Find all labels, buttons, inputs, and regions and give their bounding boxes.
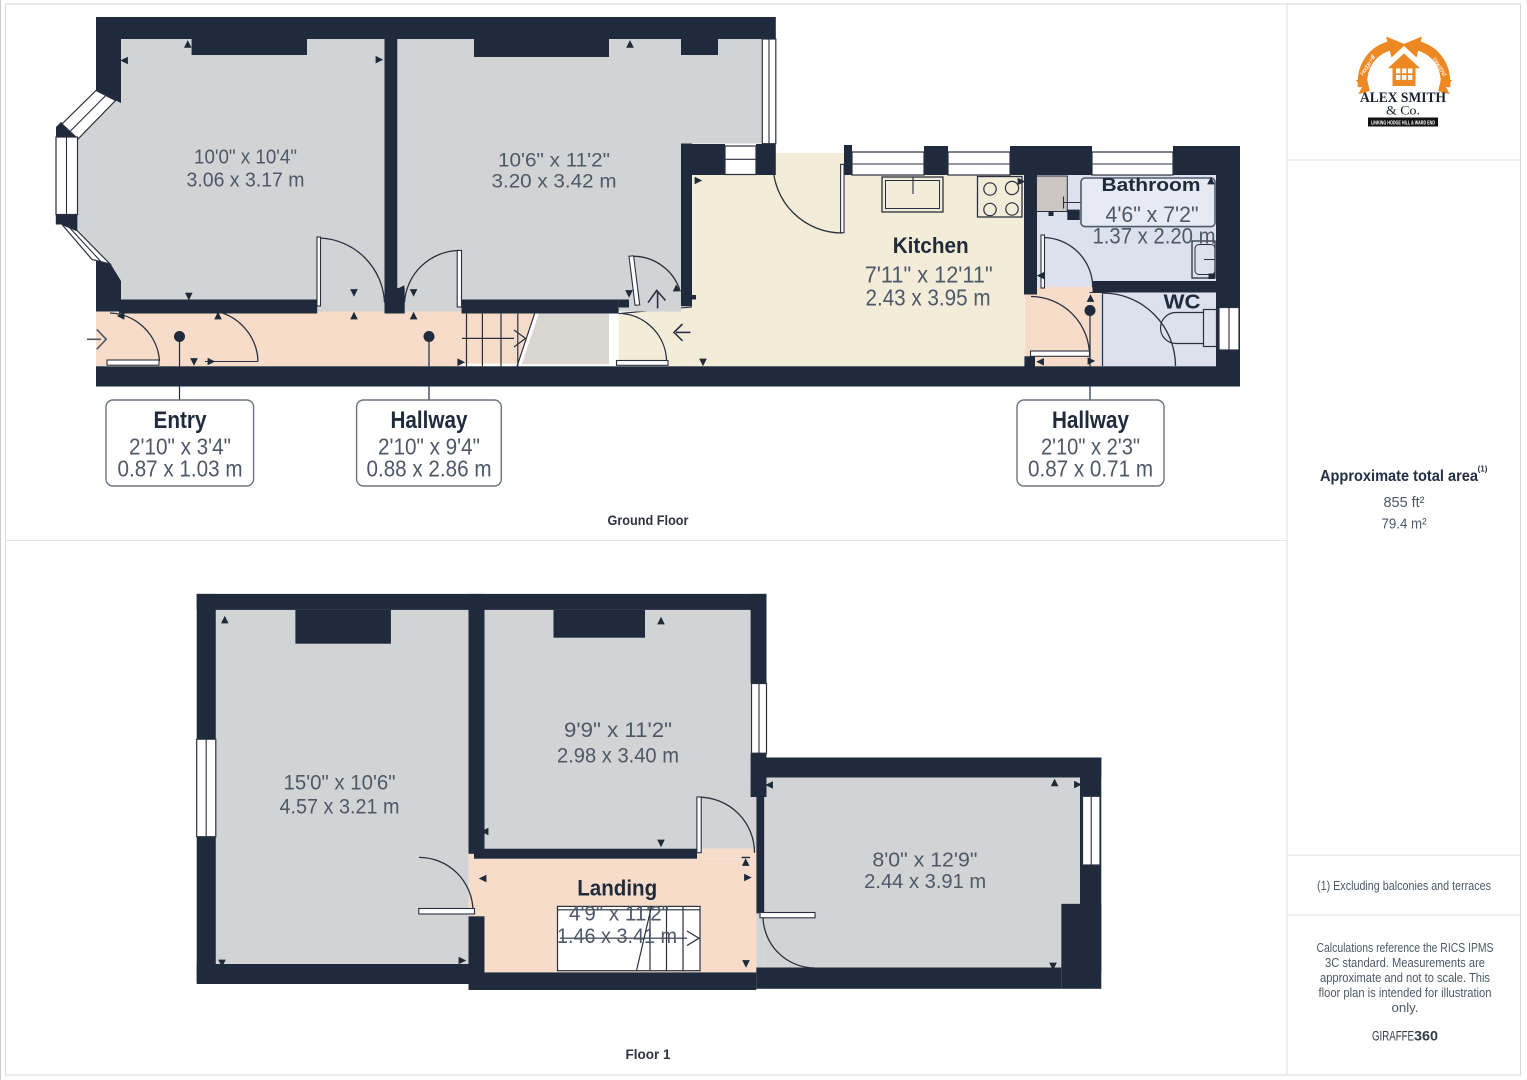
svg-text:2.43 x 3.95 m: 2.43 x 3.95 m [866,284,991,310]
svg-text:2.98 x 3.40 m: 2.98 x 3.40 m [557,744,679,768]
svg-text:10'6" x 11'2": 10'6" x 11'2" [498,150,610,171]
svg-text:Hallway: Hallway [391,407,469,434]
svg-text:79.4 m²: 79.4 m² [1382,515,1427,532]
svg-text:only.: only. [1392,1001,1419,1015]
svg-text:4'9" x 11'2": 4'9" x 11'2" [569,902,669,926]
svg-text:(1) Excluding balconies and te: (1) Excluding balconies and terraces [1317,879,1491,893]
svg-text:floor plan is intended for ill: floor plan is intended for illustration [1319,986,1492,1000]
svg-text:Approximate total area: Approximate total area [1320,468,1478,485]
svg-text:(1): (1) [1478,465,1488,474]
svg-text:Calculations reference the RIC: Calculations reference the RICS IPMS [1317,941,1494,955]
svg-text:3C standard. Measurements are: 3C standard. Measurements are [1325,956,1485,970]
svg-text:& Co.: & Co. [1386,103,1420,118]
svg-text:9'9" x 11'2": 9'9" x 11'2" [564,718,672,742]
svg-text:GIRAFFE: GIRAFFE [1372,1029,1414,1044]
svg-text:Floor 1: Floor 1 [626,1046,671,1062]
svg-text:WC: WC [1164,291,1201,314]
svg-text:Ward End: Ward End [1430,57,1447,78]
svg-text:3.20 x 3.42 m: 3.20 x 3.42 m [492,171,617,192]
svg-text:Landing: Landing [577,876,657,901]
svg-text:2.44 x 3.91 m: 2.44 x 3.91 m [864,871,986,893]
svg-text:3.06 x 3.17 m: 3.06 x 3.17 m [187,169,305,191]
svg-text:Entry: Entry [154,407,208,434]
svg-text:Hallway: Hallway [1052,407,1130,434]
svg-text:approximate and not to scale.: approximate and not to scale. This [1320,971,1490,985]
svg-text:15'0" x 10'6": 15'0" x 10'6" [284,771,396,795]
svg-text:LINKING HODGE HILL & WARD END: LINKING HODGE HILL & WARD END [1371,120,1435,126]
svg-text:855 ft²: 855 ft² [1384,494,1425,511]
svg-text:0.88 x 2.86 m: 0.88 x 2.86 m [367,456,492,482]
svg-text:1.37 x 2.20 m: 1.37 x 2.20 m [1093,223,1216,248]
svg-text:Hodge Hill: Hodge Hill [1360,54,1378,77]
svg-text:4.57 x 3.21 m: 4.57 x 3.21 m [280,795,400,819]
svg-text:1.46 x 3.41 m: 1.46 x 3.41 m [557,924,677,948]
svg-text:ALEX SMITH: ALEX SMITH [1360,90,1447,106]
svg-text:Kitchen: Kitchen [893,233,969,258]
svg-text:Ground Floor: Ground Floor [608,512,689,528]
svg-text:0.87 x 0.71 m: 0.87 x 0.71 m [1028,456,1153,482]
svg-text:0.87 x 1.03 m: 0.87 x 1.03 m [118,456,243,482]
svg-text:360: 360 [1414,1029,1438,1044]
svg-text:Bathroom: Bathroom [1102,175,1201,195]
svg-text:8'0" x 12'9": 8'0" x 12'9" [872,850,977,872]
svg-text:10'0" x 10'4": 10'0" x 10'4" [194,147,297,169]
